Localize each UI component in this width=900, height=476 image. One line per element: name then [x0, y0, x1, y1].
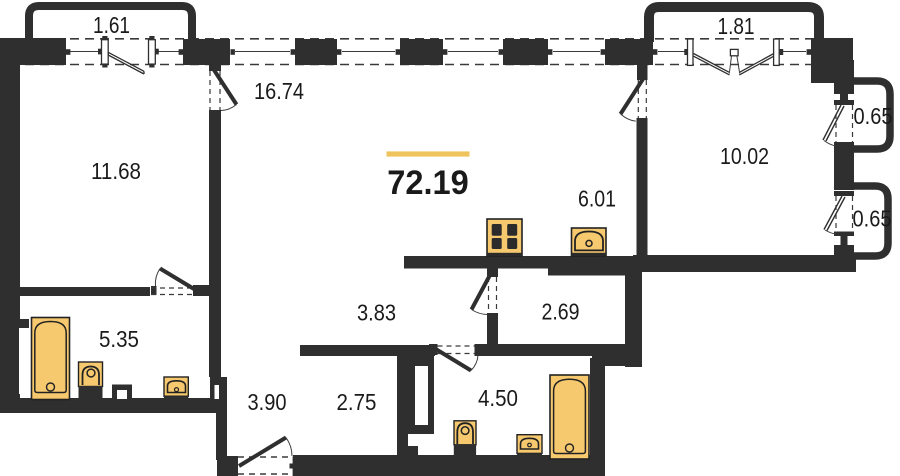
svg-text:2.75: 2.75 [337, 389, 377, 415]
svg-text:16.74: 16.74 [254, 78, 304, 104]
svg-text:3.90: 3.90 [248, 389, 287, 415]
svg-text:0.65: 0.65 [854, 103, 893, 129]
svg-text:1.81: 1.81 [718, 13, 755, 39]
svg-text:1.61: 1.61 [93, 12, 130, 38]
svg-text:4.50: 4.50 [478, 385, 518, 411]
svg-text:5.35: 5.35 [99, 326, 139, 352]
svg-text:3.83: 3.83 [357, 300, 396, 326]
svg-text:72.19: 72.19 [387, 164, 469, 202]
svg-text:11.68: 11.68 [91, 158, 141, 184]
svg-text:6.01: 6.01 [578, 186, 616, 212]
svg-text:10.02: 10.02 [720, 143, 769, 169]
svg-text:0.65: 0.65 [853, 206, 892, 232]
svg-text:2.69: 2.69 [542, 299, 580, 325]
